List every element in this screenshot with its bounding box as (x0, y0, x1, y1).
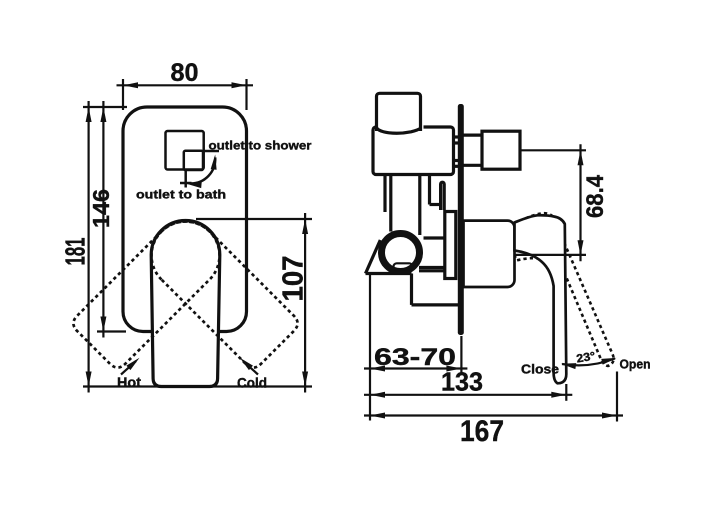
svg-text:146: 146 (88, 189, 114, 228)
svg-text:Open: Open (620, 358, 651, 372)
svg-text:outlet to bath: outlet to bath (136, 188, 226, 202)
svg-text:107: 107 (277, 256, 309, 302)
svg-text:181: 181 (60, 238, 91, 266)
svg-text:167: 167 (460, 415, 504, 448)
svg-text:Cold: Cold (237, 376, 267, 391)
svg-text:80: 80 (171, 59, 199, 87)
svg-text:133: 133 (441, 367, 483, 397)
svg-text:Hot: Hot (117, 375, 142, 390)
svg-text:outlet to shower: outlet to shower (209, 139, 312, 153)
svg-text:68.4: 68.4 (582, 174, 609, 218)
svg-text:Close: Close (521, 363, 559, 377)
